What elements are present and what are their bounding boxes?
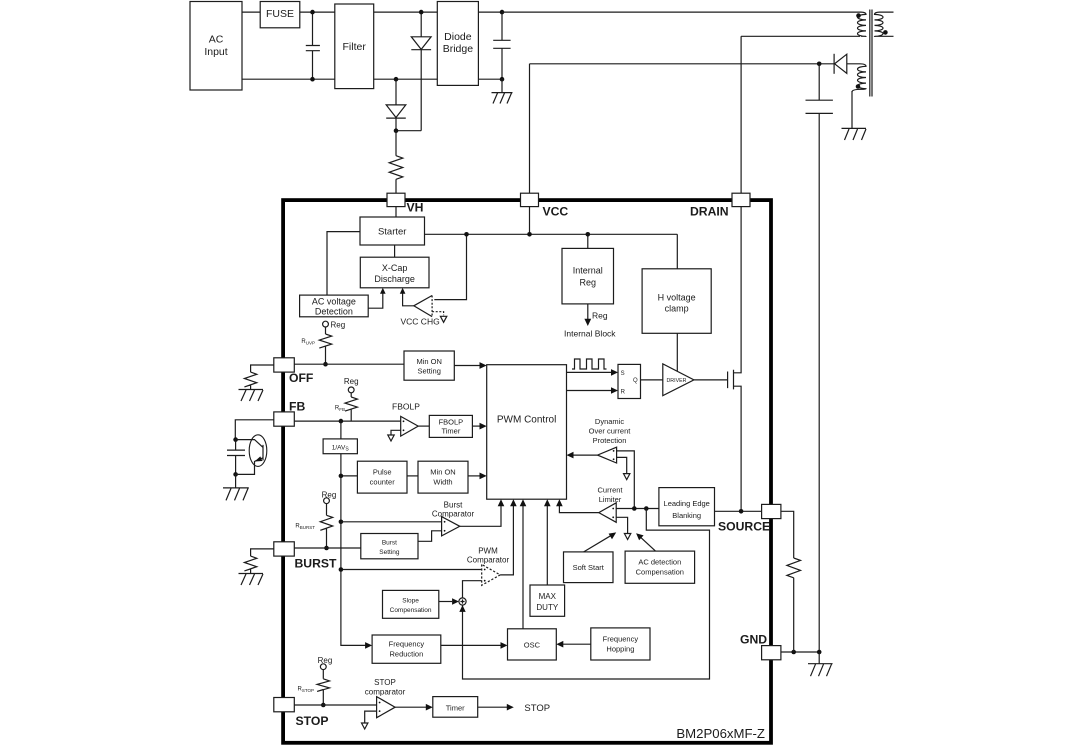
svg-text:Reg: Reg (592, 311, 608, 321)
svg-text:Frequency: Frequency (603, 635, 639, 644)
svg-text:Detection: Detection (315, 307, 353, 317)
svg-text:Hopping: Hopping (606, 645, 634, 654)
svg-text:comparator: comparator (365, 688, 406, 697)
svg-text:Compensation: Compensation (390, 607, 432, 614)
svg-text:PWM: PWM (478, 547, 498, 556)
svg-text:Input: Input (204, 46, 227, 58)
svg-text:Leading Edge: Leading Edge (664, 499, 710, 508)
svg-text:RUVP: RUVP (301, 339, 315, 346)
svg-text:Filter: Filter (343, 41, 367, 53)
svg-text:Min ON: Min ON (416, 357, 441, 366)
svg-text:Protection: Protection (593, 436, 627, 445)
svg-text:Internal Block: Internal Block (564, 329, 616, 339)
svg-text:Over current: Over current (589, 427, 632, 436)
svg-text:MAX: MAX (539, 592, 557, 601)
svg-text:Reg: Reg (580, 278, 597, 288)
svg-text:VH: VH (407, 201, 424, 215)
svg-text:Diode: Diode (444, 31, 472, 43)
svg-text:clamp: clamp (665, 304, 689, 314)
svg-text:RSTOP: RSTOP (297, 687, 314, 694)
svg-text:STOP: STOP (374, 678, 396, 687)
svg-text:Current: Current (597, 486, 623, 495)
svg-text:Internal: Internal (573, 266, 603, 276)
svg-text:Width: Width (433, 478, 452, 487)
svg-text:VCC CHG: VCC CHG (401, 317, 440, 327)
svg-text:R: R (621, 389, 626, 395)
svg-text:VCC: VCC (543, 205, 569, 219)
svg-text:BM2P06xMF-Z: BM2P06xMF-Z (676, 726, 765, 741)
svg-text:Compensation: Compensation (636, 568, 684, 577)
svg-text:Discharge: Discharge (374, 274, 415, 284)
svg-text:H voltage: H voltage (658, 293, 696, 303)
svg-text:Blanking: Blanking (672, 511, 701, 520)
svg-text:OSC: OSC (524, 641, 541, 650)
svg-text:Starter: Starter (378, 227, 407, 238)
svg-text:S: S (621, 371, 625, 377)
svg-text:Burst: Burst (444, 501, 463, 510)
svg-text:SOURCE: SOURCE (718, 520, 770, 534)
svg-text:GND: GND (740, 633, 767, 647)
svg-text:Min ON: Min ON (430, 468, 455, 477)
svg-text:Setting: Setting (379, 549, 400, 556)
svg-text:Comparator: Comparator (432, 510, 475, 519)
svg-text:STOP: STOP (296, 714, 329, 728)
svg-text:Q: Q (633, 378, 638, 384)
svg-text:Dynamic: Dynamic (595, 417, 624, 426)
svg-text:RFB: RFB (335, 406, 345, 413)
svg-text:X-Cap: X-Cap (382, 263, 408, 273)
svg-text:Slope: Slope (402, 598, 419, 605)
svg-text:Soft Start: Soft Start (573, 563, 605, 572)
svg-text:Bridge: Bridge (443, 43, 474, 55)
svg-text:1/AVS: 1/AVS (332, 445, 350, 453)
svg-text:FB: FB (289, 400, 305, 414)
svg-text:DUTY: DUTY (536, 603, 558, 612)
svg-text:OFF: OFF (289, 371, 313, 385)
svg-text:BURST: BURST (295, 557, 338, 571)
svg-text:Reduction: Reduction (390, 650, 424, 659)
svg-text:AC detection: AC detection (638, 558, 681, 567)
svg-text:AC: AC (209, 34, 224, 46)
svg-text:Reg: Reg (331, 321, 346, 330)
svg-text:Limiter: Limiter (599, 495, 622, 504)
svg-text:STOP: STOP (524, 703, 550, 714)
svg-text:Burst: Burst (382, 540, 397, 547)
svg-text:Reg: Reg (318, 656, 333, 665)
svg-text:Reg: Reg (322, 491, 337, 500)
svg-text:FBOLP: FBOLP (439, 418, 464, 427)
svg-text:DRAIN: DRAIN (690, 205, 729, 219)
svg-text:Setting: Setting (418, 367, 441, 376)
svg-text:PWM Control: PWM Control (497, 415, 556, 426)
svg-text:counter: counter (370, 478, 396, 487)
svg-text:Comparator: Comparator (467, 556, 510, 565)
svg-text:Reg: Reg (344, 377, 359, 386)
svg-text:Timer: Timer (446, 704, 465, 713)
svg-text:Timer: Timer (441, 427, 460, 436)
svg-text:DRIVER: DRIVER (666, 378, 686, 384)
svg-text:Frequency: Frequency (389, 640, 425, 649)
svg-text:RBURST: RBURST (295, 524, 315, 531)
svg-text:AC voltage: AC voltage (312, 297, 356, 307)
svg-text:FUSE: FUSE (266, 8, 294, 20)
svg-text:FBOLP: FBOLP (392, 402, 420, 412)
svg-text:Pulse: Pulse (373, 468, 392, 477)
